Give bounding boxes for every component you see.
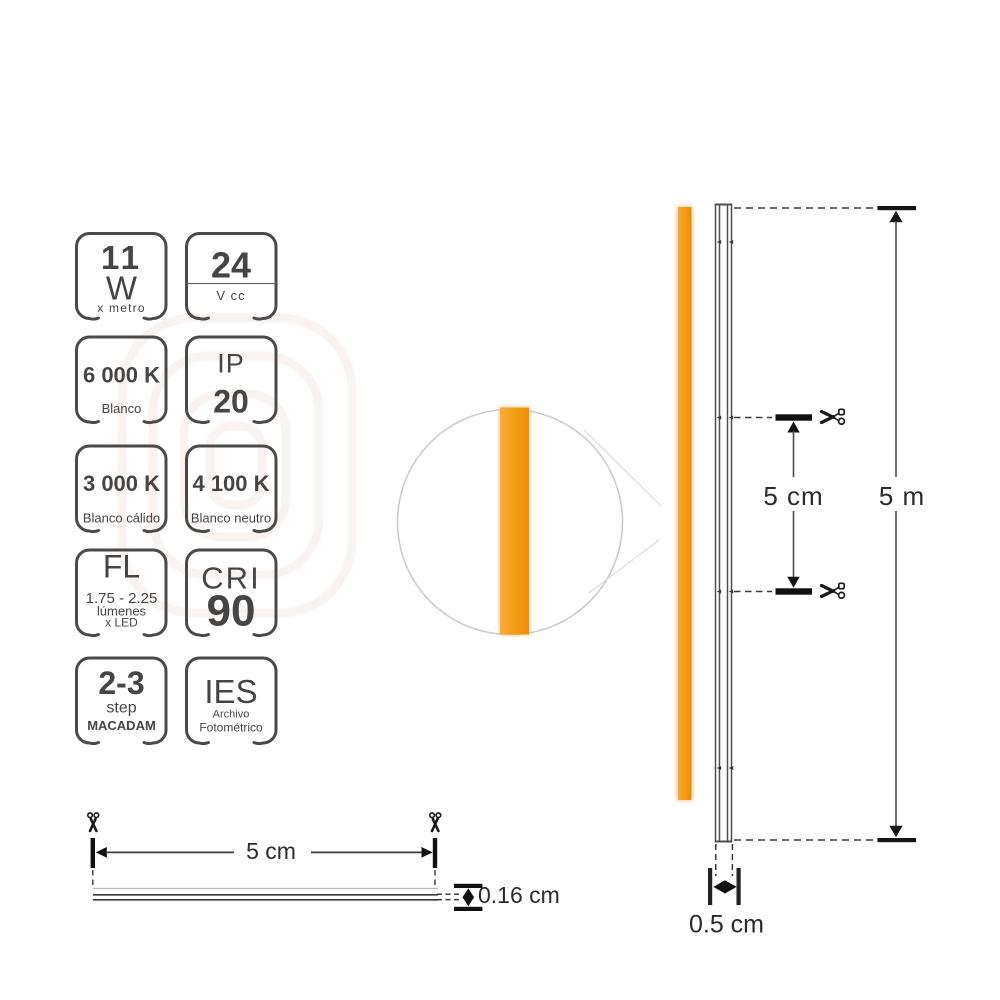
svg-text:Blanco: Blanco <box>102 401 142 416</box>
svg-text:20: 20 <box>213 384 249 420</box>
svg-text:Blanco cálido: Blanco cálido <box>83 511 160 526</box>
svg-text:24: 24 <box>211 245 251 286</box>
svg-text:Archivo: Archivo <box>213 709 250 721</box>
svg-text:6 000 K: 6 000 K <box>83 363 160 388</box>
svg-text:5 m: 5 m <box>879 481 925 511</box>
svg-text:5 cm: 5 cm <box>763 481 823 511</box>
svg-text:3 000 K: 3 000 K <box>83 471 160 496</box>
svg-text:IES: IES <box>204 673 257 710</box>
svg-text:0.16 cm: 0.16 cm <box>478 882 560 908</box>
svg-text:Fotométrico: Fotométrico <box>199 721 263 735</box>
svg-text:x metro: x metro <box>97 301 145 315</box>
svg-text:IP: IP <box>217 349 245 379</box>
svg-text:0.5 cm: 0.5 cm <box>689 911 764 939</box>
svg-text:x LED: x LED <box>105 616 138 630</box>
svg-text:V cc: V cc <box>216 288 245 303</box>
svg-text:5 cm: 5 cm <box>246 838 296 864</box>
svg-text:4 100 K: 4 100 K <box>192 471 269 496</box>
svg-text:step: step <box>106 700 136 717</box>
svg-text:FL: FL <box>103 549 140 585</box>
svg-text:90: 90 <box>207 587 256 636</box>
svg-text:2-3: 2-3 <box>98 665 144 701</box>
svg-text:Blanco neutro: Blanco neutro <box>191 511 271 526</box>
svg-text:MACADAM: MACADAM <box>87 718 156 733</box>
